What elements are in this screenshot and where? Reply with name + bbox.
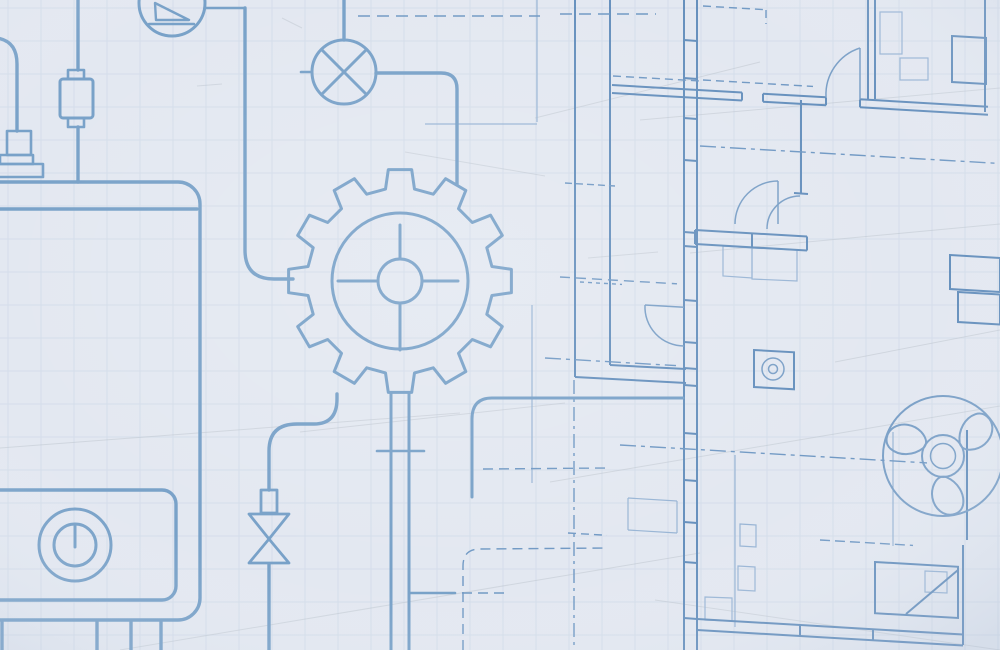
- vignette-overlay: [0, 0, 1000, 650]
- blueprint-svg: [0, 0, 1000, 650]
- blueprint-background: [0, 0, 1000, 650]
